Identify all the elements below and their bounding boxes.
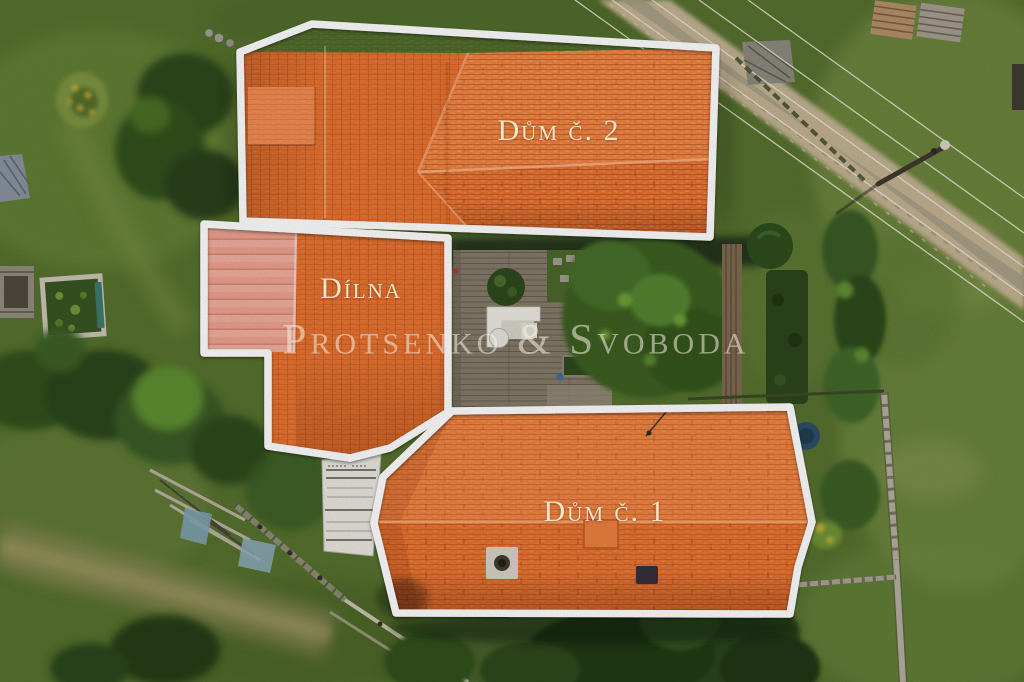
label-house1: Dům č. 1 (543, 495, 666, 529)
watermark: Protsenko & Svoboda (282, 316, 749, 365)
aerial-photo: Dům č. 2 Dílna Dům č. 1 Protsenko & Svob… (0, 0, 1024, 682)
label-workshop: Dílna (320, 272, 402, 306)
label-house2: Dům č. 2 (497, 114, 620, 148)
